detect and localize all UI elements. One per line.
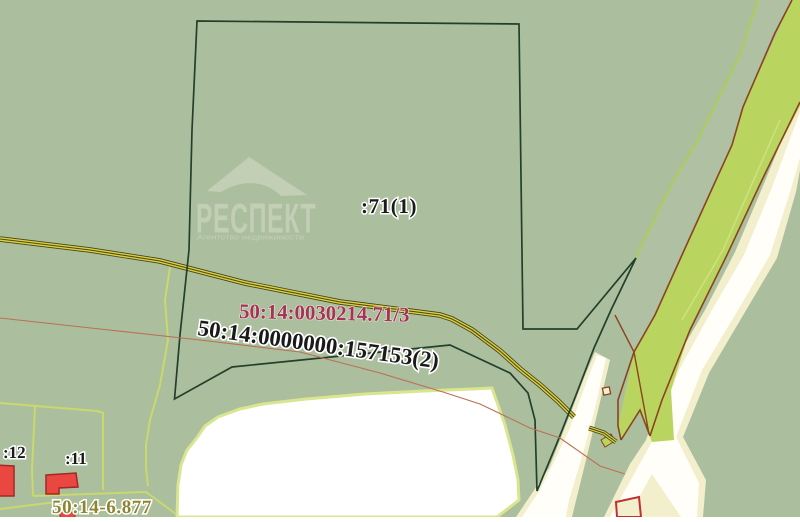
svg-text::12: :12 xyxy=(3,443,26,462)
svg-text:50:14-6.877: 50:14-6.877 xyxy=(52,497,152,517)
svg-text:Агентство недвижимости: Агентство недвижимости xyxy=(197,233,304,242)
svg-text:50:14:0030214.71/3: 50:14:0030214.71/3 xyxy=(239,300,410,327)
svg-text::11: :11 xyxy=(65,449,87,468)
svg-text::71(1): :71(1) xyxy=(361,194,417,218)
